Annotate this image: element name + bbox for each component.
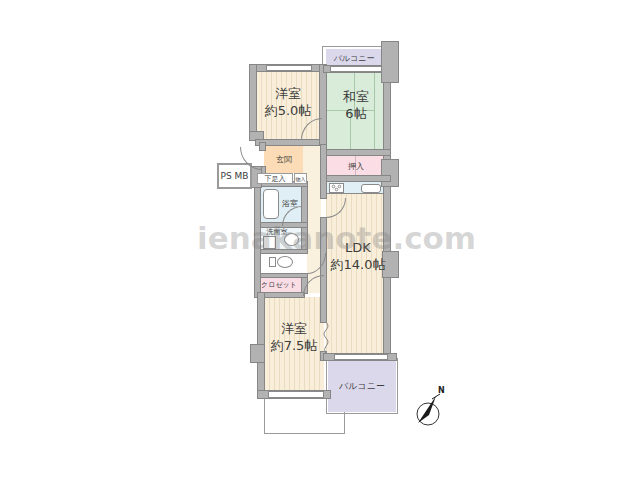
bathtub (263, 189, 279, 219)
room-west2-label: 洋室 約7.5帖 (271, 321, 318, 355)
bathroom-label: 浴室 (282, 198, 298, 209)
window (268, 391, 324, 398)
room-ldk-size: 約14.0帖 (331, 257, 386, 274)
oshiire-label: 押入 (348, 161, 364, 172)
wall (321, 145, 326, 198)
compass-icon (407, 390, 453, 432)
room-japanese-label: 和室 6帖 (343, 89, 369, 123)
toilet-bowl (277, 256, 293, 268)
room-japanese-size: 6帖 (343, 106, 369, 123)
window (330, 66, 382, 72)
shoe-cabinet-label: 下足入 (257, 173, 293, 184)
ps-mb-box: PS MB (217, 163, 252, 189)
room-west2-size: 約7.5帖 (271, 338, 318, 355)
wall (258, 274, 307, 277)
building-outline-line (264, 399, 265, 434)
wall (258, 293, 304, 297)
wall (384, 70, 390, 360)
wall-pillar (382, 42, 398, 82)
building-outline-line (344, 412, 345, 434)
balcony-bottom-label: バルコニー (339, 380, 385, 393)
room-west1-name: 洋室 (265, 86, 312, 103)
wall-pillar (382, 160, 398, 186)
floorplan-canvas: 洋室 約5.0帖 和室 6帖 LDK 約14.0帖 洋室 約7.5帖 押入 バル… (0, 0, 640, 480)
window (266, 65, 312, 71)
room-west1-label: 洋室 約5.0帖 (265, 86, 312, 120)
toilet-tank (269, 257, 276, 267)
stove-icon (329, 183, 344, 193)
kitchen-sink (361, 184, 381, 193)
wall-pillar (251, 345, 264, 362)
balcony-top-label: バルコニー (334, 53, 375, 64)
genkan-label: 玄関 (276, 154, 292, 165)
small-storage-label: 物入 (294, 173, 307, 184)
wall (324, 176, 390, 181)
watermark-text: ienakanote.com (197, 220, 476, 256)
compass-north-label: N (438, 386, 445, 395)
tatami-line (374, 72, 375, 150)
closet-label: クロゼット (261, 280, 297, 290)
window (334, 354, 388, 360)
wall (324, 150, 390, 155)
wall (250, 132, 263, 140)
room-west1-size: 約5.0帖 (265, 103, 312, 120)
room-ldk (326, 194, 384, 355)
opening-wavy-line (322, 322, 330, 354)
building-outline-line (264, 433, 345, 434)
room-west2-name: 洋室 (271, 321, 318, 338)
room-japanese-name: 和室 (343, 89, 369, 106)
wall (250, 65, 256, 140)
wall (256, 140, 324, 145)
